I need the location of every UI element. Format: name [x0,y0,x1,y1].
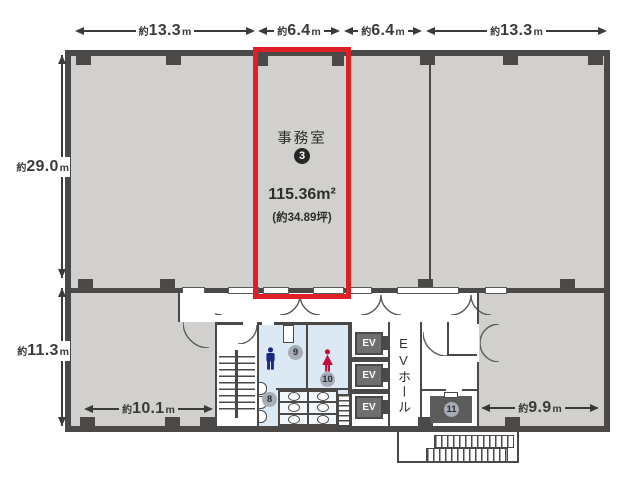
door-opening [485,287,507,294]
dimension-bottom-2: 約9.9m [481,399,599,417]
floor-plan: 9 10 8 EV EV EV EVホール 11 事務室 3 115.36m² … [0,0,640,480]
external-stair-flight [434,435,514,448]
room-number-3: 3 [294,148,310,164]
wall-segment [422,389,446,391]
outer-wall-left [65,50,71,432]
toilet-icon [288,403,300,412]
toilet-stalls [278,390,338,426]
elevator-hall-label: EVホール [394,336,413,422]
shaft-wall [350,357,388,362]
wall-segment [178,293,180,322]
dimension-left-2: 約11.3m [1,341,70,361]
column-stub [505,417,520,426]
column-stub [588,56,603,65]
arrowhead [58,288,66,297]
corridor-notch [180,293,215,322]
toilet-icon [288,415,300,424]
stair-rail [235,350,238,418]
door-swing-arc [451,295,471,315]
arrowhead [413,27,422,35]
arrowhead [344,27,353,35]
door-opening [262,322,274,325]
dimension-bottom-1: 約10.1m [84,400,213,418]
door-swing-arc [480,324,499,343]
restroom-wall [306,325,308,388]
toilet-icon [288,392,300,401]
toilet-stall [309,415,336,424]
arrowhead [246,27,255,35]
column-stub [76,56,91,65]
man-icon [264,347,277,375]
arrowhead [598,27,607,35]
hall-wall [420,322,422,426]
external-stair-flight [426,448,508,462]
toilet-stall [309,403,336,412]
room-name: 事務室 [252,127,352,148]
arrowhead [204,405,213,413]
toilet-icon [317,403,329,412]
door-swing-arc [423,332,447,356]
arrowhead [58,269,66,278]
outer-wall-right [604,50,610,432]
wall-segment [447,322,449,356]
room-number-9: 9 [288,345,303,360]
dimension-top-1: 約13.3m [75,22,255,40]
arrowhead [58,417,66,426]
arrowhead [75,27,84,35]
wall-segment [462,389,477,391]
column-stub [165,417,180,426]
sink-fixture [283,325,294,343]
door-swing-arc [471,295,491,315]
toilet-stall [280,392,307,401]
arrowhead [331,27,340,35]
arrowhead [426,27,435,35]
shaft-wall [350,389,388,394]
utility-box-notch [444,392,458,398]
toilet-stall [309,392,336,401]
door-opening [397,287,459,294]
column-stub [200,417,215,426]
column-stub [166,56,181,65]
elevator-box: EV [355,364,383,387]
wall-segment [447,354,477,356]
toilet-stall [280,415,307,424]
door-swing-arc [480,343,499,362]
room-number-11: 11 [444,402,459,417]
room-area: 115.36m² [242,186,362,204]
outer-wall-bottom [65,426,610,432]
toilet-icon [317,415,329,424]
door-swing-arc [183,322,209,348]
toilet-stall [280,403,307,412]
room-number-8: 8 [262,392,277,407]
elevator-box: EV [355,332,383,355]
dimension-top-2: 約6.4m [258,22,340,40]
dimension-left-1: 約29.0m [1,157,70,177]
column-stub [560,279,575,288]
column-stub [420,56,435,65]
door-swing-arc [381,295,401,315]
column-stub [160,279,175,288]
column-stub [503,56,518,65]
elevator-label: EV [362,402,375,413]
arrowhead [590,404,599,412]
arrowhead [258,27,267,35]
stairwell-wall [215,322,217,426]
door-swing-arc [361,295,381,315]
partition-wall [429,56,431,288]
elevator-label: EV [362,338,375,349]
door-opening [477,324,479,362]
dimension-top-3: 約6.4m [344,22,422,40]
door-swing-arc [238,325,257,344]
dimension-top-4: 約13.3m [426,22,607,40]
toilet-icon [317,392,329,401]
arrowhead [481,404,490,412]
column-stub [78,279,93,288]
duct-shaft [338,394,350,426]
elevator-label: EV [362,370,375,381]
arrowhead [84,405,93,413]
arrowhead [58,55,66,64]
room-number-10: 10 [320,372,335,387]
room-area-tsubo: (約34.89坪) [242,209,362,225]
column-stub [80,417,95,426]
highlight-room-outline [253,47,351,299]
elevator-box: EV [355,396,383,419]
hall-wall [388,322,390,426]
